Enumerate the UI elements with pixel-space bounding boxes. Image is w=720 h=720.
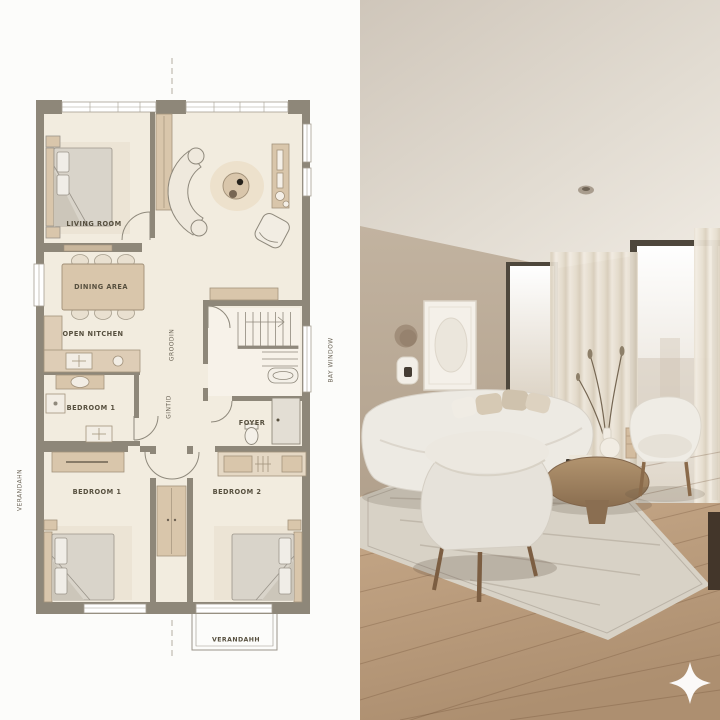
media-console-edge <box>708 512 720 590</box>
armchair-foreground <box>413 431 557 602</box>
verandah-outline <box>192 614 277 650</box>
label-foyer: FOYER <box>239 419 265 427</box>
split-image: LIVING ROOM DINING AREA OPEN NITCHEN BED… <box>0 0 720 720</box>
ceiling-light <box>578 186 594 195</box>
label-living-room: LIVING ROOM <box>66 220 121 228</box>
hall-console <box>218 452 306 476</box>
interior-photo-panel <box>360 0 720 720</box>
sheer-curtain-right <box>694 228 720 524</box>
label-verandah-side: VERANDAHN <box>17 469 24 511</box>
window-center <box>508 264 556 400</box>
label-dining-area: DINING AREA <box>74 283 128 291</box>
label-bedroom-1: BEDROOM 1 <box>73 488 122 496</box>
center-wardrobe <box>157 486 186 556</box>
label-bath-room: BEDROOM 1 <box>67 404 116 412</box>
label-corridor-a: GROODIN <box>169 329 176 361</box>
interior-photo-render <box>360 0 720 720</box>
label-corridor-b: GINTID <box>166 395 173 419</box>
label-bedroom-2: BEDROOM 2 <box>213 488 262 496</box>
floor-plan-panel: LIVING ROOM DINING AREA OPEN NITCHEN BED… <box>0 0 360 720</box>
label-verandah: VERANDAHH <box>212 637 260 644</box>
label-open-kitchen: OPEN NITCHEN <box>62 330 123 338</box>
coffee-table-plan <box>223 173 249 199</box>
floor-plan-drawing <box>0 0 360 720</box>
label-bay-window: BAY WINDOW <box>328 337 335 382</box>
sideboard-plan <box>272 144 289 208</box>
